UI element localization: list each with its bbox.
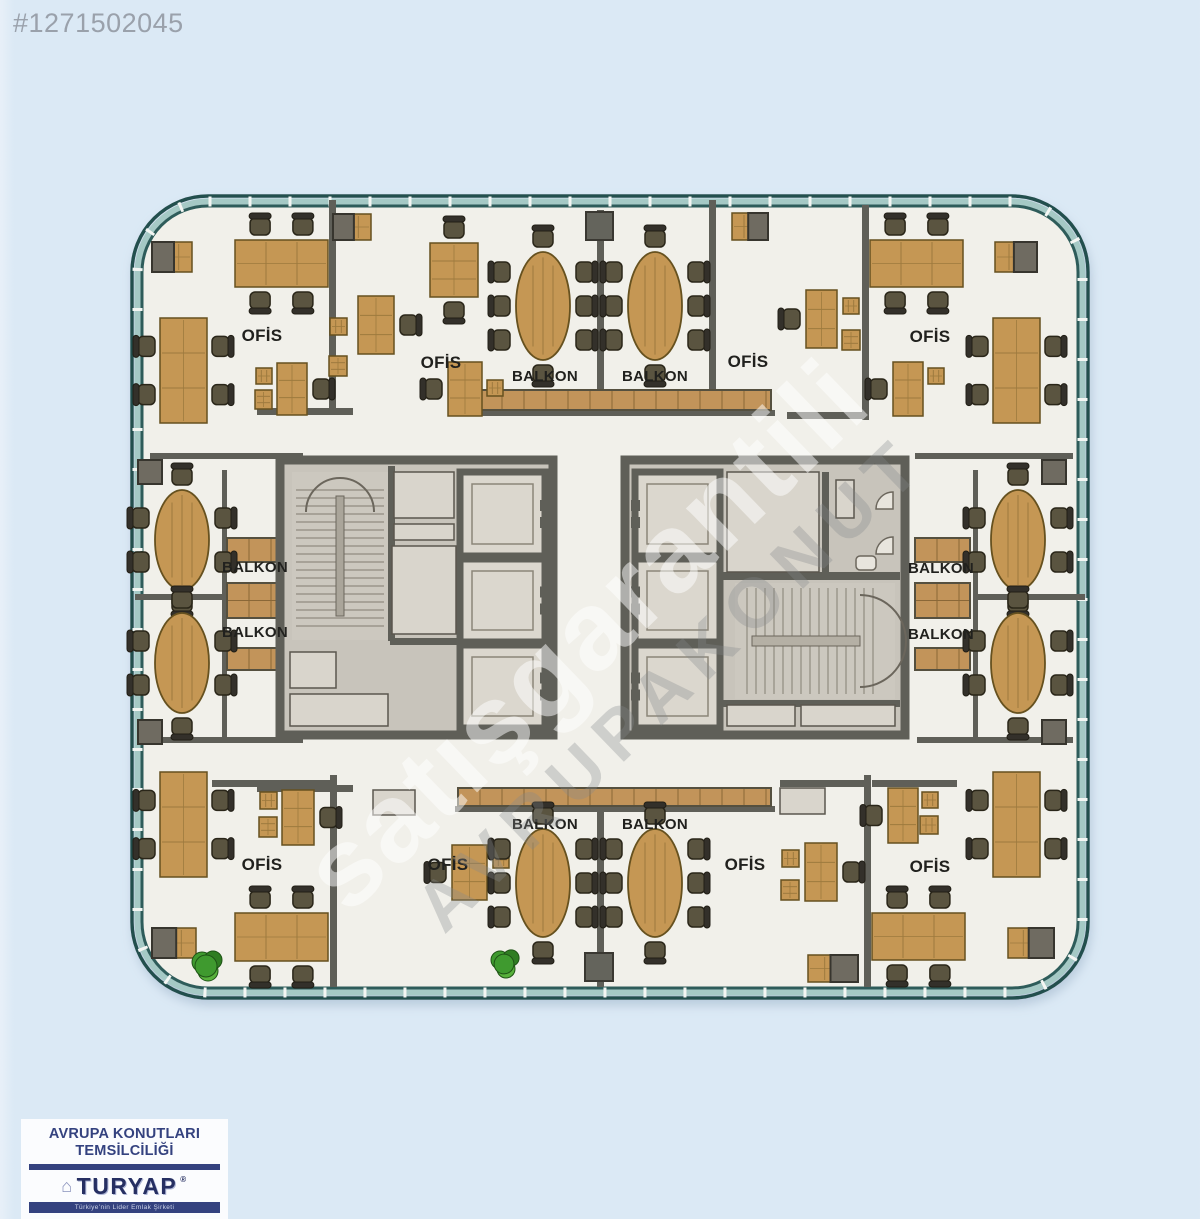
chair <box>313 378 335 400</box>
chair <box>133 789 155 811</box>
side-table <box>922 792 938 808</box>
cabinet <box>138 720 162 744</box>
chair <box>532 225 554 247</box>
side-table <box>255 390 272 409</box>
wall <box>709 200 716 390</box>
agency-name-line2: TEMSİLCİLİĞİ <box>27 1143 222 1160</box>
chair <box>576 295 598 317</box>
chair <box>133 335 155 357</box>
side-table <box>260 792 277 809</box>
chair <box>576 329 598 351</box>
side-table <box>781 880 799 900</box>
chair <box>212 838 234 860</box>
side-table <box>842 330 860 350</box>
side-table <box>256 368 272 384</box>
side-table <box>928 368 944 384</box>
core-room-panel <box>394 524 454 540</box>
core-room-panel <box>727 705 795 726</box>
chair <box>688 838 710 860</box>
meeting-table-top <box>235 913 328 961</box>
agency-name-line1: AVRUPA KONUTLARI <box>27 1126 222 1143</box>
chair <box>1051 507 1073 529</box>
cabinet-unit <box>333 214 371 240</box>
chair <box>249 886 271 908</box>
wall <box>780 780 865 787</box>
chair <box>1007 586 1029 608</box>
cabinet <box>1042 720 1066 744</box>
cabinet <box>138 460 162 484</box>
chair <box>688 906 710 928</box>
chair <box>292 213 314 235</box>
chair <box>488 329 510 351</box>
meeting-table-top <box>160 318 207 423</box>
cabinet <box>1042 460 1066 484</box>
meeting-table-top <box>872 913 965 960</box>
sideboard <box>780 788 825 814</box>
chair <box>249 213 271 235</box>
chair <box>644 942 666 964</box>
chair <box>443 216 465 238</box>
office-label: OFİS <box>421 353 462 372</box>
cabinet-unit <box>995 242 1037 272</box>
chair <box>171 718 193 740</box>
chair <box>215 674 237 696</box>
chair <box>1045 789 1067 811</box>
chair <box>1045 335 1067 357</box>
chair <box>133 384 155 406</box>
chair <box>171 463 193 485</box>
office-label: OFİS <box>910 327 951 346</box>
chair <box>1051 551 1073 573</box>
chair <box>884 292 906 314</box>
chair <box>576 838 598 860</box>
chair <box>576 872 598 894</box>
balcony-label: BALKON <box>512 368 578 385</box>
balcony-label: BALKON <box>622 368 688 385</box>
chair <box>443 302 465 324</box>
logo-divider-bar <box>29 1164 220 1170</box>
meeting-table-top <box>870 240 963 287</box>
chair <box>249 292 271 314</box>
office-label: OFİS <box>242 855 283 874</box>
side-table <box>259 817 277 837</box>
chair <box>292 966 314 988</box>
chair <box>215 507 237 529</box>
turyap-brand-name: TURYAP <box>77 1173 178 1200</box>
chair <box>600 295 622 317</box>
chair <box>688 295 710 317</box>
floor-plan: OFİSOFİSOFİSOFİSOFİSOFİSOFİSOFİSBALKONBA… <box>0 0 1200 1200</box>
chair <box>532 942 554 964</box>
meeting-table-top <box>993 772 1040 877</box>
chair <box>600 261 622 283</box>
wall <box>872 780 957 787</box>
turyap-brand-row: ⌂TURYAP® <box>27 1173 222 1200</box>
chair <box>865 378 887 400</box>
office-label: OFİS <box>728 352 769 371</box>
chair <box>576 261 598 283</box>
chair <box>644 225 666 247</box>
chair <box>886 965 908 987</box>
chair <box>1051 630 1073 652</box>
agency-logo-card: AVRUPA KONUTLARI TEMSİLCİLİĞİ ⌂TURYAP® T… <box>21 1119 228 1219</box>
chair <box>488 261 510 283</box>
chair <box>860 805 882 827</box>
chair <box>127 551 149 573</box>
chair <box>843 861 865 883</box>
office-label: OFİS <box>242 326 283 345</box>
chair <box>927 292 949 314</box>
chair <box>212 335 234 357</box>
elevator-cabin <box>460 472 549 556</box>
balcony-label: BALKON <box>222 624 288 641</box>
chair <box>212 789 234 811</box>
chair <box>292 292 314 314</box>
office-label: OFİS <box>725 855 766 874</box>
balcony-label: BALKON <box>622 816 688 833</box>
chair <box>966 789 988 811</box>
chair <box>778 308 800 330</box>
balcony-deck <box>915 648 970 670</box>
chair <box>963 507 985 529</box>
chair <box>576 906 598 928</box>
wc-toilet <box>856 556 876 570</box>
chair <box>963 674 985 696</box>
side-table <box>329 356 347 376</box>
chair <box>600 872 622 894</box>
chair <box>127 674 149 696</box>
meeting-table-top <box>160 772 207 877</box>
desk-top <box>806 290 837 348</box>
chair <box>1051 674 1073 696</box>
side-table <box>330 318 347 335</box>
chair <box>600 906 622 928</box>
cabinet-unit <box>1008 928 1054 958</box>
cabinet-unit <box>732 213 768 240</box>
chair <box>966 838 988 860</box>
side-table <box>920 816 938 834</box>
balcony-deck <box>458 390 771 410</box>
core-room-panel <box>290 652 336 688</box>
turyap-tagline: Türkiye'nin Lider Emlak Şirketi <box>75 1204 175 1211</box>
chair <box>1007 718 1029 740</box>
chair <box>488 295 510 317</box>
chair <box>127 630 149 652</box>
desk-top <box>893 362 923 416</box>
office-label: OFİS <box>910 857 951 876</box>
registered-mark: ® <box>180 1175 187 1184</box>
chair <box>600 838 622 860</box>
listing-image-page: #1271502045 OFİSOFİSOFİSOFİSOFİSOFİSOFİS… <box>0 0 1200 1200</box>
chair <box>688 261 710 283</box>
side-table <box>782 850 799 867</box>
balcony-deck <box>915 583 970 618</box>
balcony-label: BALKON <box>222 559 288 576</box>
chair <box>171 586 193 608</box>
chair <box>688 872 710 894</box>
balcony-label: BALKON <box>908 626 974 643</box>
side-table <box>843 298 859 314</box>
desk-top <box>805 843 837 901</box>
balcony-deck <box>915 538 970 562</box>
chair <box>212 384 234 406</box>
chair <box>886 886 908 908</box>
desk-top <box>277 363 307 415</box>
chair <box>966 384 988 406</box>
cabinet-unit <box>152 242 192 272</box>
chair <box>127 507 149 529</box>
side-table <box>487 380 503 396</box>
chair <box>927 213 949 235</box>
meeting-table-top <box>235 240 328 287</box>
wall <box>915 453 1073 459</box>
wall <box>212 780 333 787</box>
chair <box>133 838 155 860</box>
turyap-tagline-bar: Türkiye'nin Lider Emlak Şirketi <box>29 1202 220 1213</box>
core-room-panel <box>392 546 456 634</box>
chair <box>966 335 988 357</box>
cabinet-unit <box>808 955 858 982</box>
balcony-deck <box>227 583 279 618</box>
chair <box>1007 463 1029 485</box>
core-room-panel <box>801 705 895 726</box>
wall <box>975 594 1085 600</box>
meeting-table-top <box>993 318 1040 423</box>
chair <box>249 966 271 988</box>
chair <box>688 329 710 351</box>
core-room-panel <box>290 694 388 726</box>
chair <box>929 965 951 987</box>
chair <box>1045 384 1067 406</box>
desk-top <box>358 296 394 354</box>
staircase <box>292 472 388 640</box>
meeting-table-top <box>430 243 478 297</box>
column <box>585 953 613 981</box>
chair <box>884 213 906 235</box>
chair <box>1045 838 1067 860</box>
turyap-logo-icon: ⌂ <box>61 1176 73 1197</box>
chair <box>600 329 622 351</box>
balcony-label: BALKON <box>908 560 974 577</box>
chair <box>420 378 442 400</box>
chair <box>929 886 951 908</box>
core-room-panel <box>394 472 454 518</box>
cabinet-unit <box>152 928 196 958</box>
column <box>586 212 613 240</box>
chair <box>400 314 422 336</box>
desk-top <box>888 788 918 843</box>
chair <box>292 886 314 908</box>
